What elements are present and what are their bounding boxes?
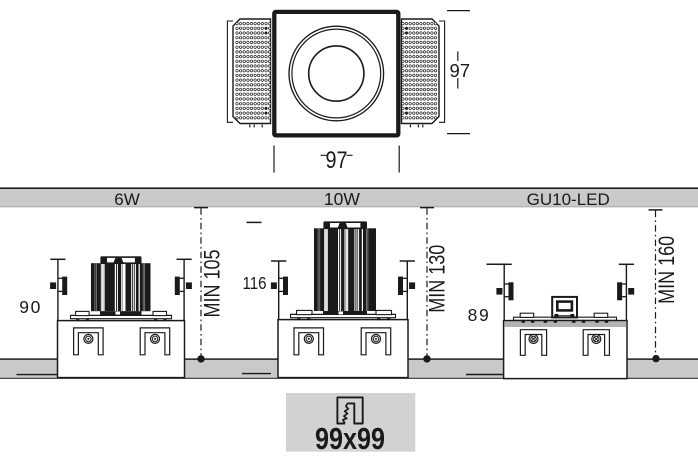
- svg-text:89: 89: [468, 305, 491, 325]
- svg-text:MIN 130: MIN 130: [424, 245, 449, 313]
- svg-text:10W: 10W: [324, 189, 360, 209]
- svg-text:97: 97: [326, 147, 348, 174]
- svg-text:97: 97: [450, 60, 471, 81]
- svg-text:6W: 6W: [114, 190, 140, 209]
- svg-text:MIN 105: MIN 105: [200, 250, 225, 318]
- svg-text:116: 116: [243, 273, 267, 293]
- svg-text:GU10-LED: GU10-LED: [527, 190, 610, 209]
- svg-text:MIN 160: MIN 160: [654, 236, 679, 304]
- svg-text:90: 90: [19, 297, 42, 317]
- svg-text:99x99: 99x99: [315, 421, 385, 456]
